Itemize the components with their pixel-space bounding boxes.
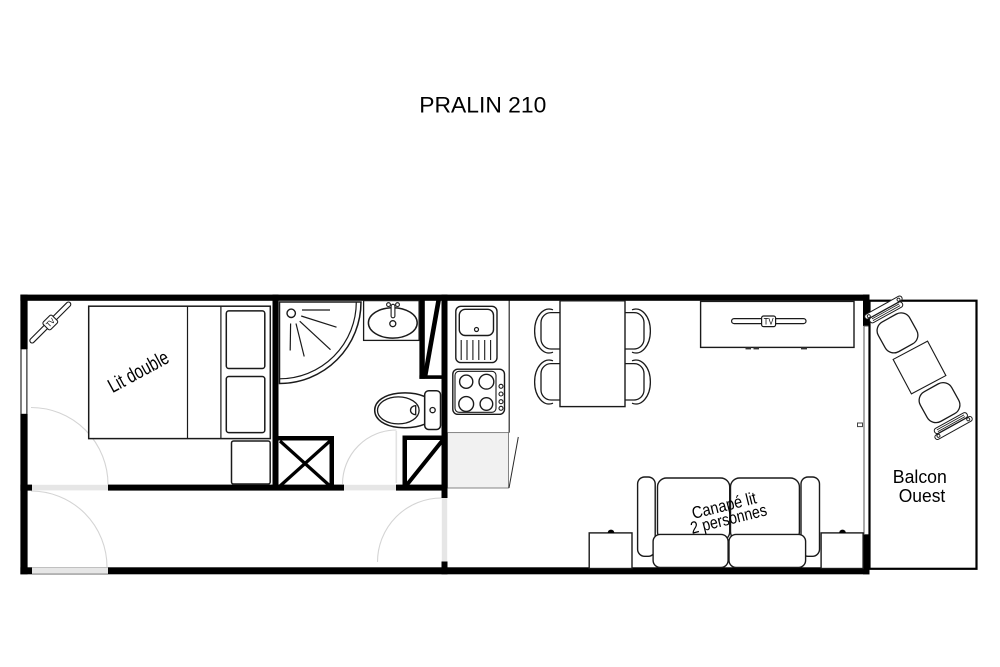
svg-text:Balcon: Balcon <box>893 467 947 487</box>
svg-text:Ouest: Ouest <box>899 486 946 506</box>
svg-text:TV: TV <box>764 316 774 326</box>
svg-text:PRALIN 210: PRALIN 210 <box>419 92 546 117</box>
